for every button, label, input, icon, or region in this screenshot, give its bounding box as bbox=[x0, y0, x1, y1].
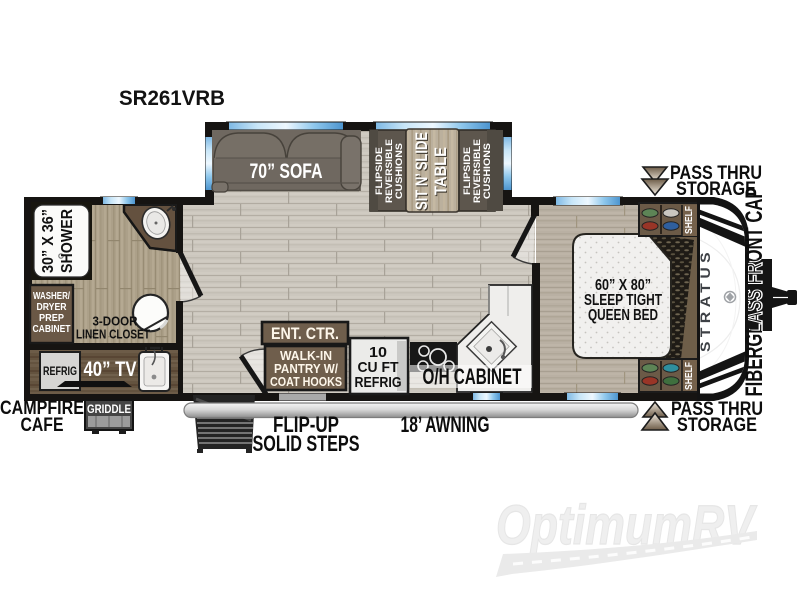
svg-text:SHOWER: SHOWER bbox=[59, 209, 76, 273]
svg-text:SHELF: SHELF bbox=[684, 362, 695, 390]
svg-text:REFRIG: REFRIG bbox=[43, 366, 77, 378]
svg-text:GRIDDLE: GRIDDLE bbox=[87, 404, 131, 416]
svg-text:70” SOFA: 70” SOFA bbox=[250, 160, 323, 183]
svg-text:STORAGE: STORAGE bbox=[676, 178, 756, 200]
svg-text:SIT N’ SLIDE: SIT N’ SLIDE bbox=[413, 132, 431, 210]
svg-text:COAT HOOKS: COAT HOOKS bbox=[270, 375, 342, 389]
svg-text:SHELF: SHELF bbox=[684, 206, 695, 234]
svg-text:CABINET: CABINET bbox=[33, 323, 71, 335]
svg-text:30” X 36”: 30” X 36” bbox=[40, 209, 57, 273]
svg-text:PANTRY W/: PANTRY W/ bbox=[274, 362, 338, 376]
svg-text:CAFE: CAFE bbox=[21, 415, 64, 436]
svg-text:O/H CABINET: O/H CABINET bbox=[423, 364, 522, 389]
svg-text:ENT. CTR.: ENT. CTR. bbox=[271, 325, 339, 343]
svg-text:STRATUS: STRATUS bbox=[697, 248, 713, 352]
svg-text:CUSHIONS: CUSHIONS bbox=[482, 143, 493, 199]
svg-text:REFRIG: REFRIG bbox=[355, 374, 402, 391]
svg-text:18’ AWNING: 18’ AWNING bbox=[401, 412, 490, 437]
svg-text:SR261VRB: SR261VRB bbox=[119, 87, 225, 110]
svg-text:WALK-IN: WALK-IN bbox=[280, 349, 332, 363]
svg-text:TABLE: TABLE bbox=[432, 147, 450, 195]
svg-text:CUSHIONS: CUSHIONS bbox=[394, 143, 405, 199]
svg-text:40” TV: 40” TV bbox=[84, 358, 137, 381]
svg-text:STORAGE: STORAGE bbox=[677, 414, 757, 436]
svg-text:LINEN CLOSET: LINEN CLOSET bbox=[76, 327, 150, 342]
svg-text:SOLID STEPS: SOLID STEPS bbox=[253, 431, 360, 456]
svg-text:QUEEN BED: QUEEN BED bbox=[588, 307, 658, 324]
